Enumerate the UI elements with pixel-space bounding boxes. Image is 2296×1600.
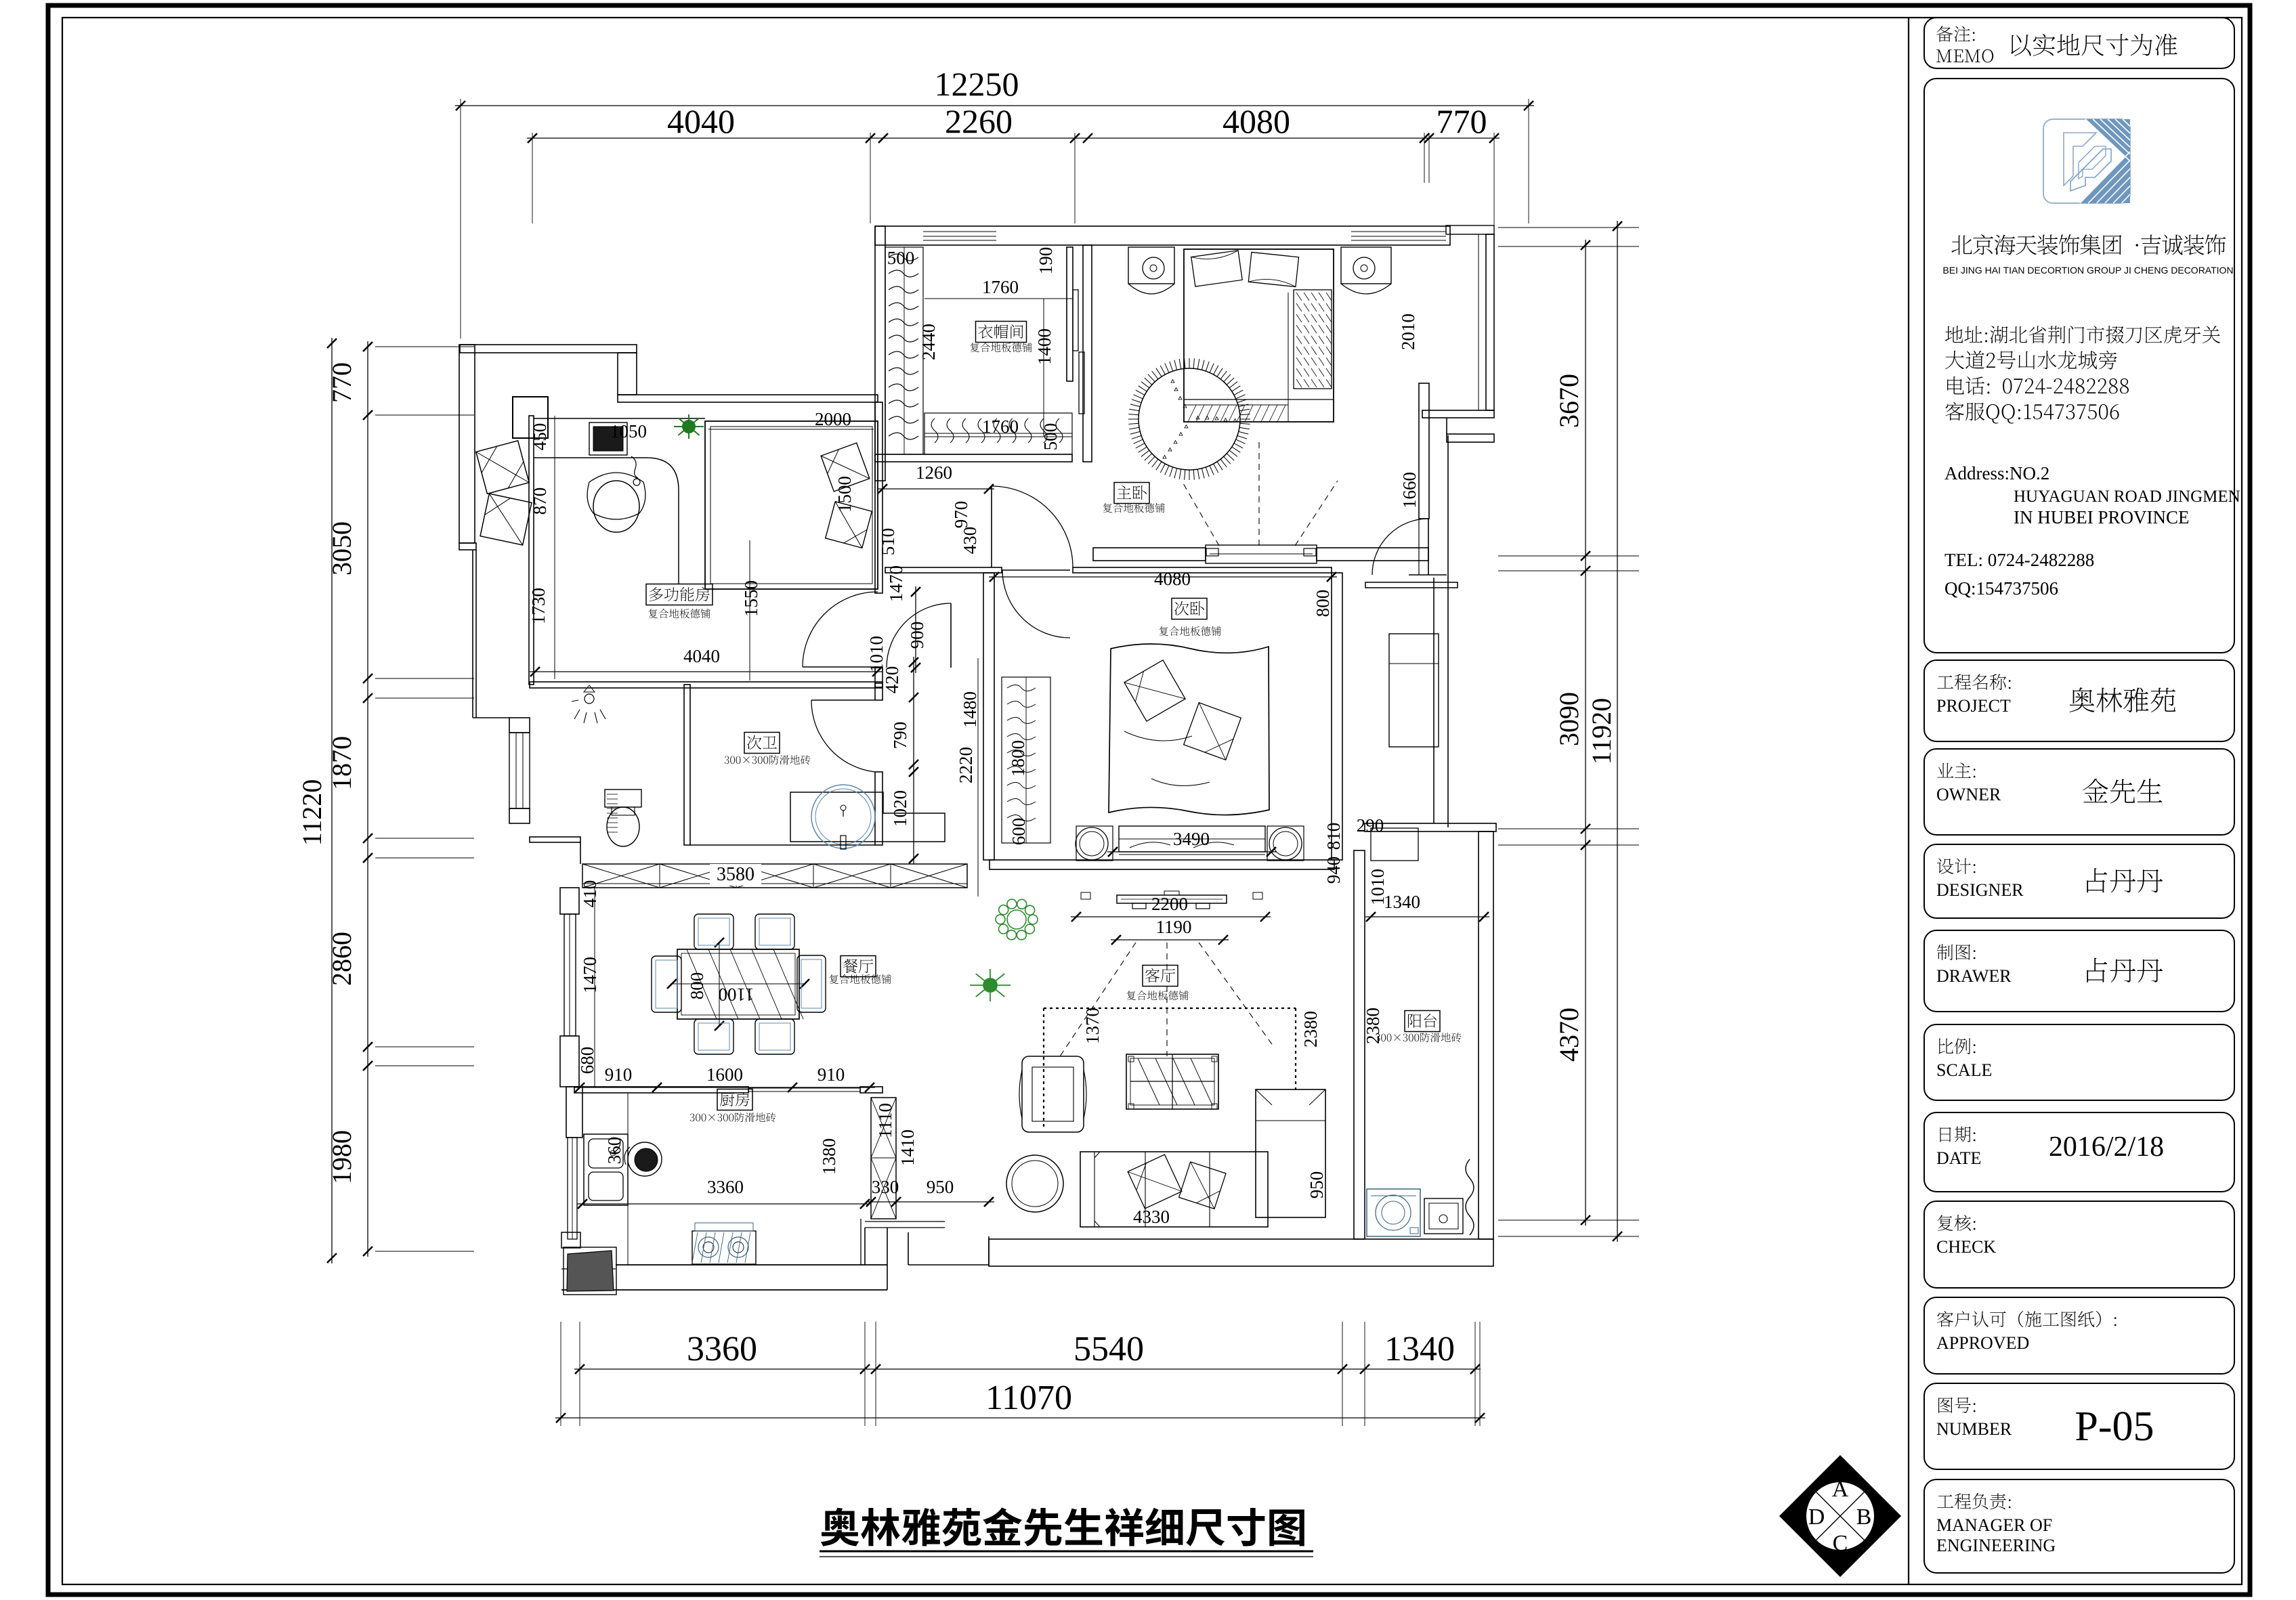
svg-text:420: 420 — [882, 666, 902, 694]
svg-text:MANAGER OF: MANAGER OF — [1936, 1515, 2052, 1535]
svg-text:4370: 4370 — [1554, 1008, 1584, 1062]
svg-text:SCALE: SCALE — [1936, 1060, 1992, 1080]
svg-text:1870: 1870 — [326, 736, 357, 790]
svg-text:1100: 1100 — [719, 985, 754, 1005]
svg-text:5540: 5540 — [1073, 1330, 1144, 1368]
svg-text:1470: 1470 — [886, 565, 906, 602]
svg-text:1730: 1730 — [528, 588, 549, 624]
svg-text:1470: 1470 — [580, 957, 600, 993]
svg-text:A: A — [1832, 1477, 1849, 1502]
svg-text:2380: 2380 — [1363, 1008, 1383, 1044]
svg-text:12250: 12250 — [935, 65, 1019, 103]
svg-text:900: 900 — [907, 622, 927, 649]
svg-text:500: 500 — [1040, 423, 1061, 451]
svg-text:3360: 3360 — [707, 1177, 744, 1197]
svg-text:APPROVED: APPROVED — [1936, 1333, 2029, 1353]
svg-text:1800: 1800 — [1008, 740, 1028, 777]
svg-text:2440: 2440 — [918, 324, 939, 360]
svg-text:910: 910 — [817, 1064, 845, 1085]
svg-text:C: C — [1833, 1531, 1848, 1556]
svg-text:3580: 3580 — [717, 864, 754, 885]
svg-text:450: 450 — [530, 423, 550, 451]
svg-text:Address:NO.2: Address:NO.2 — [1944, 463, 2049, 483]
svg-text:11070: 11070 — [985, 1379, 1072, 1417]
svg-text:DATE: DATE — [1936, 1148, 1981, 1168]
svg-text:4040: 4040 — [667, 102, 735, 140]
svg-text:360: 360 — [604, 1137, 624, 1165]
svg-text:2200: 2200 — [1151, 894, 1188, 914]
svg-text:HUYAGUAN ROAD JINGMEN: HUYAGUAN ROAD JINGMEN — [2014, 488, 2240, 506]
svg-text:2380: 2380 — [1300, 1011, 1321, 1047]
svg-text:1480: 1480 — [960, 691, 980, 728]
svg-text:3090: 3090 — [1554, 692, 1584, 746]
svg-text:4040: 4040 — [683, 646, 720, 666]
svg-text:510: 510 — [878, 528, 898, 556]
svg-text:CHECK: CHECK — [1936, 1237, 1996, 1257]
svg-text:1600: 1600 — [706, 1064, 743, 1085]
svg-text:430: 430 — [960, 527, 980, 555]
svg-text:3490: 3490 — [1173, 829, 1210, 849]
svg-text:2860: 2860 — [326, 932, 357, 986]
svg-text:1380: 1380 — [819, 1138, 839, 1175]
svg-text:QQ:154737506: QQ:154737506 — [1944, 578, 2058, 599]
svg-text:1190: 1190 — [1156, 917, 1192, 937]
svg-text:1010: 1010 — [1367, 869, 1388, 905]
svg-text:TEL: 0724-2482288: TEL: 0724-2482288 — [1944, 550, 2094, 570]
svg-text:190: 190 — [1036, 247, 1056, 275]
svg-text:790: 790 — [890, 722, 910, 750]
svg-text:B: B — [1856, 1505, 1872, 1530]
svg-text:OWNER: OWNER — [1936, 785, 2001, 804]
svg-text:11220: 11220 — [297, 779, 327, 846]
svg-text:IN HUBEI PROVINCE: IN HUBEI PROVINCE — [2014, 507, 2190, 527]
svg-text:800: 800 — [687, 972, 707, 1000]
svg-text:D: D — [1808, 1505, 1825, 1530]
svg-text:1400: 1400 — [1034, 328, 1055, 365]
svg-text:870: 870 — [530, 488, 550, 515]
svg-text:1020: 1020 — [890, 790, 910, 827]
svg-text:1500: 1500 — [834, 476, 855, 513]
svg-text:11920: 11920 — [1586, 698, 1617, 765]
svg-text:2010: 2010 — [1398, 313, 1418, 350]
svg-text:970: 970 — [951, 501, 971, 529]
svg-text:1340: 1340 — [1384, 892, 1420, 912]
svg-text:290: 290 — [1357, 815, 1384, 836]
svg-text:3050: 3050 — [326, 521, 357, 576]
svg-text:NUMBER: NUMBER — [1936, 1419, 2012, 1439]
svg-text:330: 330 — [872, 1177, 899, 1197]
svg-text:4330: 4330 — [1133, 1207, 1170, 1227]
svg-text:2260: 2260 — [945, 102, 1013, 140]
svg-text:4080: 4080 — [1154, 569, 1191, 589]
svg-text:1760: 1760 — [982, 416, 1019, 437]
svg-text:1370: 1370 — [1082, 1008, 1103, 1044]
svg-text:BEI JING HAI TIAN DECORTION GR: BEI JING HAI TIAN DECORTION GROUP JI CHE… — [1942, 265, 2233, 276]
svg-text:770: 770 — [1437, 102, 1487, 140]
svg-text:940: 940 — [1323, 857, 1344, 884]
svg-text:DRAWER: DRAWER — [1936, 966, 2012, 986]
svg-text:3360: 3360 — [687, 1330, 757, 1368]
svg-text:4080: 4080 — [1223, 102, 1290, 140]
svg-text:410: 410 — [580, 880, 600, 908]
svg-text:1660: 1660 — [1399, 472, 1420, 509]
svg-text:2016/2/18: 2016/2/18 — [2049, 1131, 2164, 1163]
svg-text:1980: 1980 — [326, 1130, 357, 1184]
svg-text:1050: 1050 — [610, 421, 647, 441]
svg-text:1110: 1110 — [875, 1103, 895, 1138]
svg-text:1550: 1550 — [741, 580, 761, 617]
svg-text:1260: 1260 — [916, 462, 952, 483]
svg-text:P-05: P-05 — [2075, 1404, 2154, 1450]
svg-text:1760: 1760 — [982, 277, 1019, 297]
svg-text:3670: 3670 — [1554, 374, 1584, 428]
svg-text:2000: 2000 — [815, 409, 851, 429]
svg-text:DESIGNER: DESIGNER — [1936, 880, 2024, 900]
svg-text:810: 810 — [1323, 823, 1344, 850]
svg-text:950: 950 — [1306, 1171, 1327, 1199]
svg-text:ENGINEERING: ENGINEERING — [1936, 1536, 2056, 1555]
svg-text:PROJECT: PROJECT — [1936, 696, 2011, 716]
svg-text:910: 910 — [605, 1064, 633, 1085]
svg-text:770: 770 — [326, 362, 357, 403]
svg-text:800: 800 — [1313, 590, 1333, 618]
svg-text:950: 950 — [927, 1177, 954, 1197]
svg-text:600: 600 — [1008, 818, 1029, 846]
svg-text:2220: 2220 — [956, 747, 976, 783]
svg-text:500: 500 — [887, 248, 915, 268]
svg-text:1340: 1340 — [1384, 1330, 1455, 1368]
svg-text:1410: 1410 — [897, 1129, 918, 1166]
